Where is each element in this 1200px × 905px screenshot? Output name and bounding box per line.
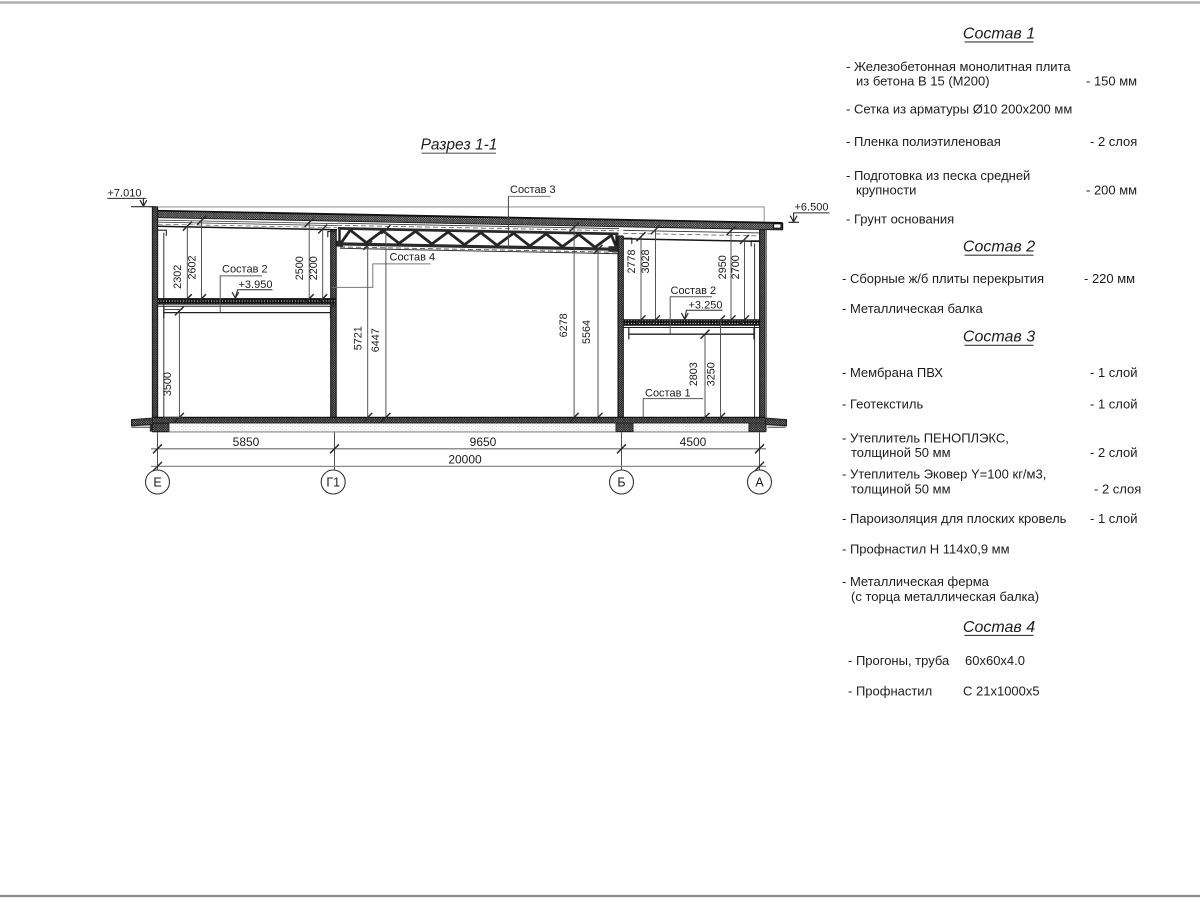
svg-text:- Профнастил: - Профнастил (848, 684, 932, 699)
svg-text:- 1 слой: - 1 слой (1090, 365, 1138, 380)
svg-text:Состав 2: Состав 2 (963, 239, 1035, 256)
svg-text:- Металлическая балка: - Металлическая балка (842, 301, 983, 316)
svg-text:Состав 4: Состав 4 (963, 619, 1035, 636)
svg-text:- Пленка полиэтиленовая: - Пленка полиэтиленовая (846, 134, 1001, 149)
svg-text:крупности: крупности (856, 183, 916, 198)
svg-text:Состав 2: Состав 2 (671, 285, 717, 297)
svg-text:Состав 3: Состав 3 (963, 329, 1035, 346)
svg-text:4500: 4500 (680, 435, 707, 449)
svg-text:- Пароизоляция для плоских кро: - Пароизоляция для плоских кровель (842, 511, 1067, 526)
svg-text:2700: 2700 (730, 255, 742, 279)
svg-text:толщиной 50 мм: толщиной 50 мм (851, 482, 951, 497)
svg-text:9650: 9650 (470, 435, 497, 449)
svg-text:Разрез 1-1: Разрез 1-1 (421, 137, 498, 154)
svg-text:С 21х1000х5: С 21х1000х5 (963, 684, 1040, 699)
svg-text:5564: 5564 (581, 320, 593, 344)
svg-text:5850: 5850 (233, 435, 260, 449)
svg-text:(с торца металлическая балка): (с торца металлическая балка) (851, 589, 1039, 604)
svg-text:Состав 4: Состав 4 (390, 251, 436, 263)
svg-text:- Утеплитель Эковер Y=100 кг/м: - Утеплитель Эковер Y=100 кг/м3, (842, 466, 1046, 481)
svg-text:Г1: Г1 (326, 476, 340, 490)
svg-text:60х60х4.0: 60х60х4.0 (965, 653, 1025, 668)
svg-text:- Грунт основания: - Грунт основания (846, 212, 954, 227)
svg-text:Состав 1: Состав 1 (963, 25, 1035, 42)
svg-text:- 200 мм: - 200 мм (1086, 183, 1137, 198)
svg-text:3500: 3500 (162, 372, 174, 396)
svg-text:+3.250: +3.250 (689, 299, 723, 311)
svg-text:2778: 2778 (626, 249, 638, 273)
svg-text:+7.010: +7.010 (108, 187, 142, 199)
svg-text:3250: 3250 (705, 362, 717, 386)
svg-text:Е: Е (153, 476, 161, 490)
svg-text:+6.500: +6.500 (795, 202, 829, 214)
svg-text:2950: 2950 (717, 255, 729, 279)
svg-text:5721: 5721 (352, 326, 364, 350)
svg-text:Состав 3: Состав 3 (510, 184, 556, 196)
svg-text:20000: 20000 (448, 452, 482, 466)
svg-text:- Геотекстиль: - Геотекстиль (842, 397, 923, 412)
svg-text:- Профнастил Н 114х0,9 мм: - Профнастил Н 114х0,9 мм (842, 542, 1010, 557)
svg-text:3028: 3028 (640, 249, 652, 273)
svg-text:Состав 2: Состав 2 (222, 264, 268, 276)
svg-text:- Железобетонная монолитная п: - Железобетонная монолитная плита (846, 59, 1071, 74)
svg-text:2200: 2200 (308, 256, 320, 280)
svg-text:- 220 мм: - 220 мм (1084, 271, 1135, 286)
svg-text:- 1 слой: - 1 слой (1090, 397, 1138, 412)
svg-text:- Сетка из арматуры Ø10 200х20: - Сетка из арматуры Ø10 200х200 мм (846, 102, 1072, 117)
svg-text:Состав 1: Состав 1 (645, 388, 691, 400)
svg-text:- Прогоны, труба: - Прогоны, труба (848, 653, 950, 668)
svg-text:из бетона В 15 (М200): из бетона В 15 (М200) (856, 74, 990, 89)
svg-text:+3.950: +3.950 (239, 279, 273, 291)
svg-text:- Металлическая ферма: - Металлическая ферма (842, 574, 990, 589)
svg-text:А: А (755, 476, 764, 490)
svg-text:6278: 6278 (558, 313, 570, 337)
svg-text:2302: 2302 (172, 265, 184, 289)
svg-text:Б: Б (617, 476, 625, 490)
svg-text:6447: 6447 (370, 328, 382, 352)
svg-text:- Утеплитель ПЕНОПЛЭКС,: - Утеплитель ПЕНОПЛЭКС, (842, 430, 1009, 445)
svg-text:2803: 2803 (688, 362, 700, 386)
svg-text:- 2 слой: - 2 слой (1090, 445, 1138, 460)
svg-text:- 150 мм: - 150 мм (1086, 74, 1137, 89)
svg-text:- Мембрана ПВХ: - Мембрана ПВХ (842, 365, 943, 380)
svg-text:толщиной 50 мм: толщиной 50 мм (851, 445, 951, 460)
svg-text:2500: 2500 (294, 256, 306, 280)
svg-text:- 1 слой: - 1 слой (1090, 511, 1138, 526)
svg-text:2602: 2602 (187, 255, 199, 279)
svg-text:- 2 слоя: - 2 слоя (1090, 134, 1137, 149)
svg-text:- Сборные ж/б плиты перекрытия: - Сборные ж/б плиты перекрытия (842, 271, 1044, 286)
svg-text:- 2 слоя: - 2 слоя (1094, 482, 1141, 497)
svg-text:- Подготовка из песка средней: - Подготовка из песка средней (846, 168, 1030, 183)
